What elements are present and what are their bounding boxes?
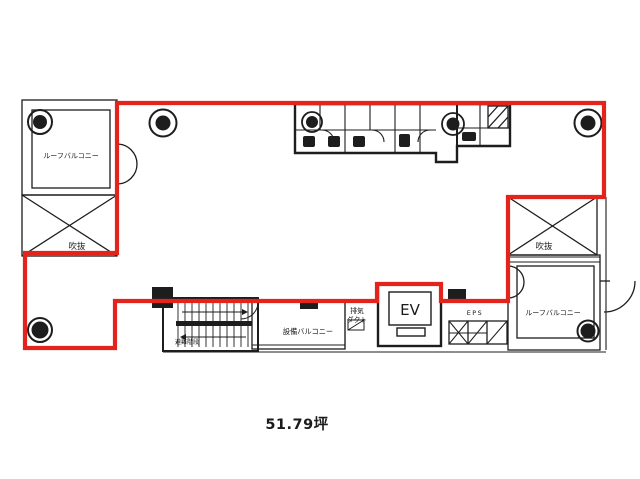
plan-labels: ルーフバルコニー 吹抜 吹抜 ルーフバルコニー EV EPS 排気 ダクト 設備… bbox=[43, 152, 580, 433]
exterior-door-arc bbox=[600, 281, 635, 312]
vent-fan-icon bbox=[150, 110, 177, 137]
roof-balcony-left bbox=[22, 100, 117, 195]
elevator-label: EV bbox=[400, 301, 420, 319]
hatch-panel bbox=[449, 321, 507, 344]
vent-fan-icon bbox=[442, 113, 464, 135]
equipment-balcony bbox=[252, 299, 345, 349]
escape-stairs bbox=[152, 287, 258, 351]
vent-fan-icon bbox=[302, 112, 322, 132]
exhaust-duct-label-line1: 排気 bbox=[350, 306, 364, 315]
hatch-panel bbox=[488, 106, 508, 128]
exhaust-duct-label-line2: ダクト bbox=[347, 315, 367, 324]
escape-stairs-label: 避難階段 bbox=[175, 338, 199, 346]
double-door-arc bbox=[117, 144, 137, 184]
eps-label: EPS bbox=[467, 309, 483, 317]
equipment-balcony-label: 設備バルコニー bbox=[283, 327, 333, 336]
door-arc bbox=[508, 266, 524, 282]
roof-balcony-left-label: ルーフバルコニー bbox=[43, 152, 98, 160]
vent-fan-icon bbox=[575, 110, 602, 137]
restroom-core bbox=[295, 104, 510, 162]
floor-plan-canvas: ルーフバルコニー 吹抜 吹抜 ルーフバルコニー EV EPS 排気 ダクト 設備… bbox=[0, 0, 640, 479]
floor-plan-screenshot: ルーフバルコニー 吹抜 吹抜 ルーフバルコニー EV EPS 排気 ダクト 設備… bbox=[0, 0, 640, 479]
stair-handrail bbox=[176, 321, 252, 326]
void-right-label: 吹抜 bbox=[535, 241, 553, 252]
void-right-box bbox=[508, 197, 600, 257]
void-left-label: 吹抜 bbox=[68, 241, 86, 252]
door-arc bbox=[508, 282, 524, 298]
wall-pier bbox=[152, 287, 173, 308]
vent-fan-icon bbox=[28, 318, 52, 342]
floor-area-label: 51.79坪 bbox=[265, 416, 328, 433]
roof-balcony-right-label: ルーフバルコニー bbox=[525, 309, 580, 317]
